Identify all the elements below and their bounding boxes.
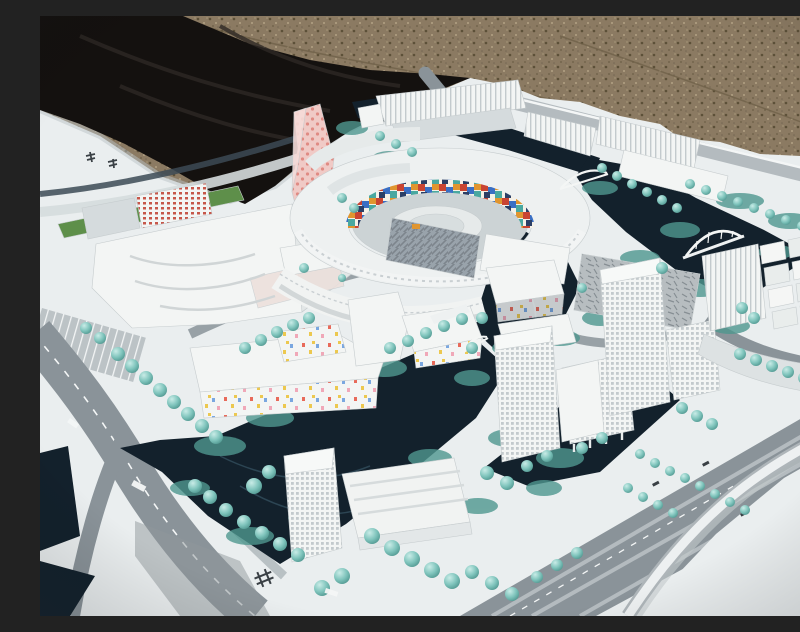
photo-architectural-model <box>40 16 800 616</box>
model-photo-canvas <box>40 16 800 616</box>
photo-vignette <box>40 16 800 616</box>
